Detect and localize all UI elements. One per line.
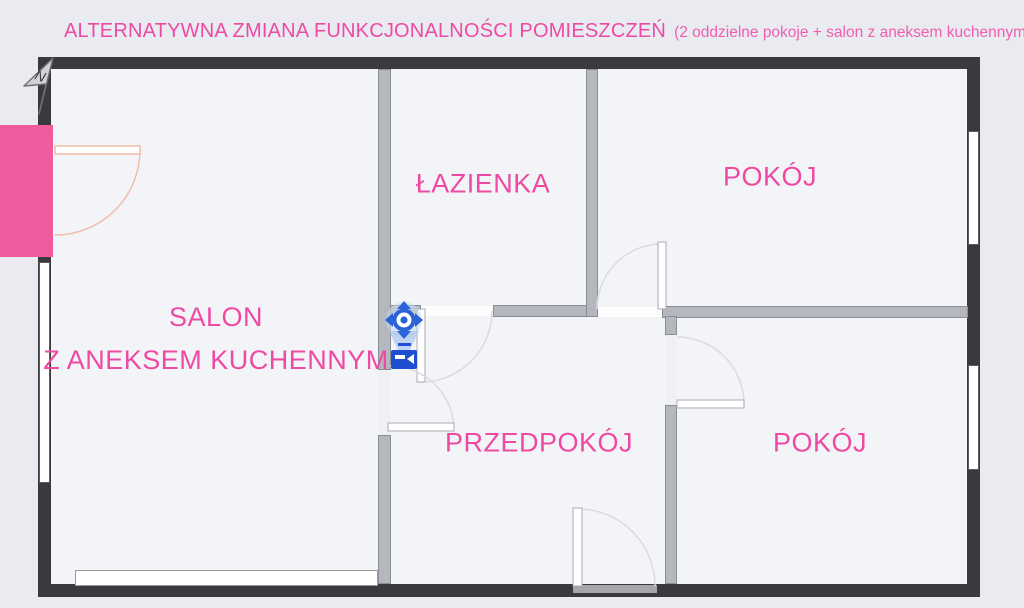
room-top-door-leaf <box>658 242 666 309</box>
room-label-pokoj-top: POKÓJ <box>723 162 817 193</box>
room-label-salon: SALON Z ANEKSEM KUCHENNYM <box>43 296 389 382</box>
salon-label-line2: Z ANEKSEM KUCHENNYM <box>43 339 389 382</box>
room-label-pokoj-bottom: POKÓJ <box>773 428 867 459</box>
entrance-door-leaf <box>55 146 140 154</box>
room-label-lazienka: ŁAZIENKA <box>416 169 551 200</box>
room-label-przedpokoj: PRZEDPOKÓJ <box>445 428 633 459</box>
bathroom-door-arc <box>421 311 492 382</box>
salon-label-line1: SALON <box>43 296 389 339</box>
camera-lens <box>398 343 411 346</box>
pan-control-dot <box>400 316 407 323</box>
hall-bottom-door-arc <box>578 509 655 586</box>
room-bottom-door-arc <box>677 337 744 404</box>
north-arrow-icon: N <box>24 58 53 114</box>
room-top-door-arc <box>597 244 662 309</box>
room-bottom-door-leaf <box>677 400 744 408</box>
entrance-door-arc <box>55 150 140 235</box>
camera-detail-1 <box>395 355 405 359</box>
hall-bottom-door-leaf <box>573 508 582 586</box>
floorplan-page: ALTERNATYWNA ZMIANA FUNKCJONALNOŚCI POMI… <box>0 0 1024 608</box>
